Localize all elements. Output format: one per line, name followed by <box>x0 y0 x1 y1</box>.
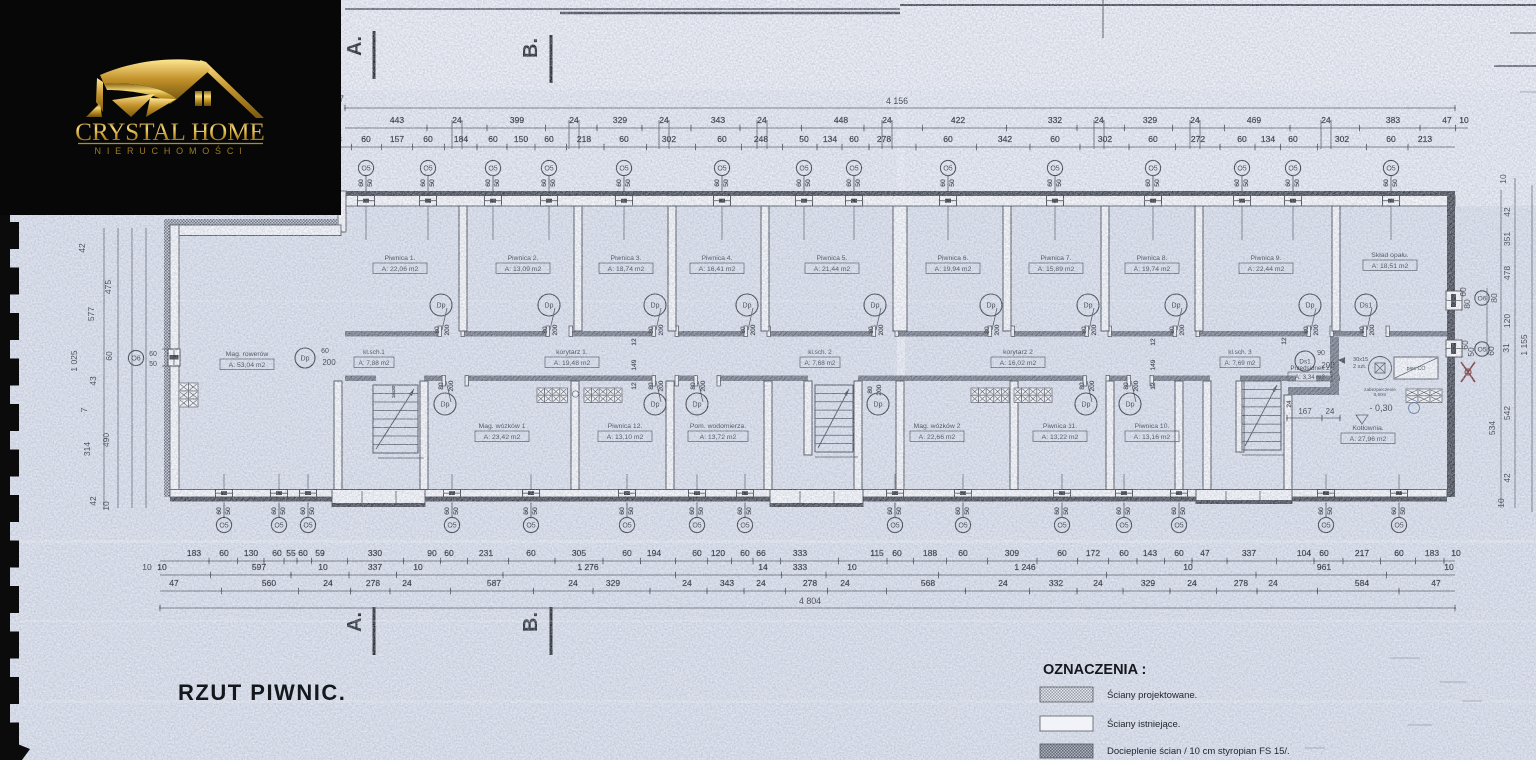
svg-text:Docieplenie ścian / 10 cm styr: Docieplenie ścian / 10 cm styropian FS 1… <box>1107 746 1290 757</box>
svg-text:Ściany istniejące.: Ściany istniejące. <box>1107 718 1180 730</box>
svg-text:OZNACZENIA :: OZNACZENIA : <box>1043 662 1146 678</box>
svg-text:CRYSTAL HOME: CRYSTAL HOME <box>75 119 264 146</box>
svg-text:RZUT PIWNIC.: RZUT PIWNIC. <box>178 680 346 705</box>
svg-text:NIERUCHOMOŚCI: NIERUCHOMOŚCI <box>95 145 248 156</box>
svg-text:Ściany projektowane.: Ściany projektowane. <box>1107 689 1197 701</box>
